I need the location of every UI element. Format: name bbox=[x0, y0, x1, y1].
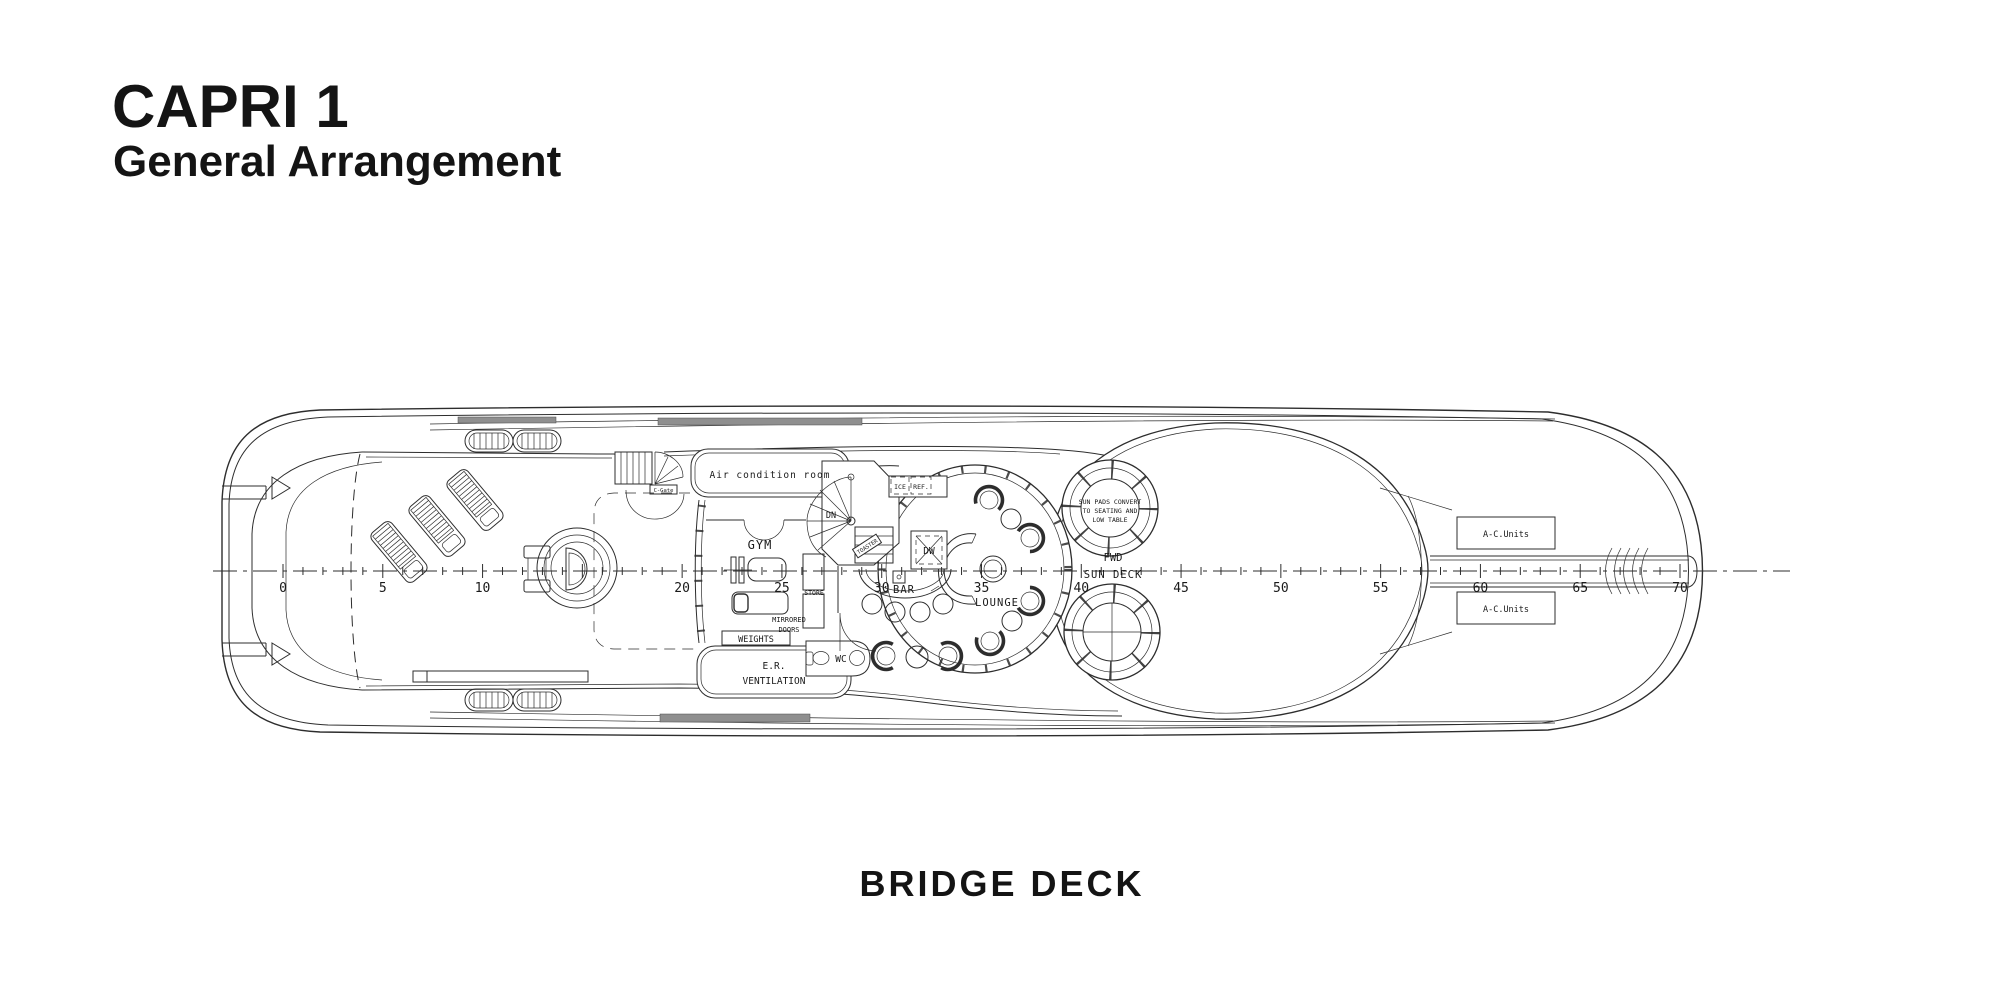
vent-grill bbox=[465, 689, 513, 711]
ruler-label: 40 bbox=[1073, 581, 1089, 596]
deck-strip bbox=[660, 714, 810, 722]
sun-lounger bbox=[368, 519, 429, 585]
vent-grill bbox=[465, 430, 513, 452]
ruler-label: 0 bbox=[279, 581, 287, 596]
bar-label: BAR bbox=[893, 584, 915, 596]
er-label: E.R. bbox=[763, 661, 786, 672]
stowed-gangway bbox=[658, 418, 862, 425]
ruler-label: 50 bbox=[1273, 581, 1289, 596]
stern-step-wedge bbox=[272, 477, 290, 499]
deck-name-label: BRIDGE DECK bbox=[859, 863, 1144, 904]
armchair bbox=[873, 643, 895, 670]
fwd-sun-deck-label: FWD bbox=[1104, 552, 1123, 564]
ruler-label: 65 bbox=[1572, 581, 1588, 596]
weights-label: WEIGHTS bbox=[738, 635, 774, 645]
ref-label: REF. bbox=[913, 483, 929, 491]
sun-lounger bbox=[444, 467, 505, 533]
ruler-label: 5 bbox=[379, 581, 387, 596]
store-closet bbox=[803, 554, 824, 590]
vent-grill bbox=[513, 430, 561, 452]
ruler-label: 70 bbox=[1672, 581, 1688, 596]
page: C-Gate bbox=[0, 0, 2000, 1000]
mirrored-doors-label: MIRRORED bbox=[772, 616, 806, 624]
dn-label: DN bbox=[826, 511, 836, 521]
air-condition-room-label: Air condition room bbox=[710, 470, 831, 481]
store-label: STORE bbox=[804, 589, 824, 597]
ruler-label: 35 bbox=[974, 581, 990, 596]
sun-pads-note: TO SEATING AND bbox=[1083, 507, 1138, 515]
deck-strip bbox=[458, 417, 556, 423]
stern-notch bbox=[222, 486, 266, 499]
bar-stool bbox=[862, 594, 882, 614]
sun-pads-note: SUN PADS CONVERT bbox=[1079, 498, 1142, 506]
passerelle bbox=[413, 671, 588, 682]
c-gate-stair: C-Gate bbox=[613, 452, 684, 519]
ruler-label: 25 bbox=[774, 581, 790, 596]
ruler-label: 55 bbox=[1373, 581, 1389, 596]
jacuzzi bbox=[524, 528, 617, 608]
ruler-label: 30 bbox=[874, 581, 890, 596]
page-subtitle: General Arrangement bbox=[113, 137, 562, 186]
ac-units-label: A-C.Units bbox=[1483, 605, 1529, 615]
ruler-label: 20 bbox=[674, 581, 690, 596]
dw-label: DW bbox=[923, 546, 935, 557]
page-title: CAPRI 1 bbox=[112, 73, 349, 140]
bulwark-top bbox=[366, 457, 612, 458]
stern-step-wedge bbox=[272, 643, 290, 665]
ice-label: ICE bbox=[894, 483, 906, 491]
general-arrangement-drawing: C-Gate bbox=[0, 0, 2000, 1000]
ruler-label: 10 bbox=[475, 581, 491, 596]
mirrored-doors-label: DOORS bbox=[778, 626, 799, 634]
ac-units-label: A-C.Units bbox=[1483, 530, 1529, 540]
wc-label: WC bbox=[835, 654, 846, 665]
sun-lounger bbox=[406, 493, 467, 559]
ruler-label: 45 bbox=[1173, 581, 1189, 596]
bar-fixture bbox=[893, 571, 905, 583]
lounge-label: LOUNGE bbox=[975, 597, 1019, 609]
er-ventilation-label: VENTILATION bbox=[743, 676, 806, 687]
fwd-sun-deck-label: SUN DECK bbox=[1084, 569, 1143, 581]
gym-label: GYM bbox=[748, 538, 773, 552]
stern-notch bbox=[222, 643, 266, 656]
store-closet bbox=[803, 594, 824, 628]
gym-double-door bbox=[744, 520, 784, 540]
sun-pads-note: LOW TABLE bbox=[1092, 516, 1127, 524]
vent-grill bbox=[513, 689, 561, 711]
ruler-label: 60 bbox=[1473, 581, 1489, 596]
